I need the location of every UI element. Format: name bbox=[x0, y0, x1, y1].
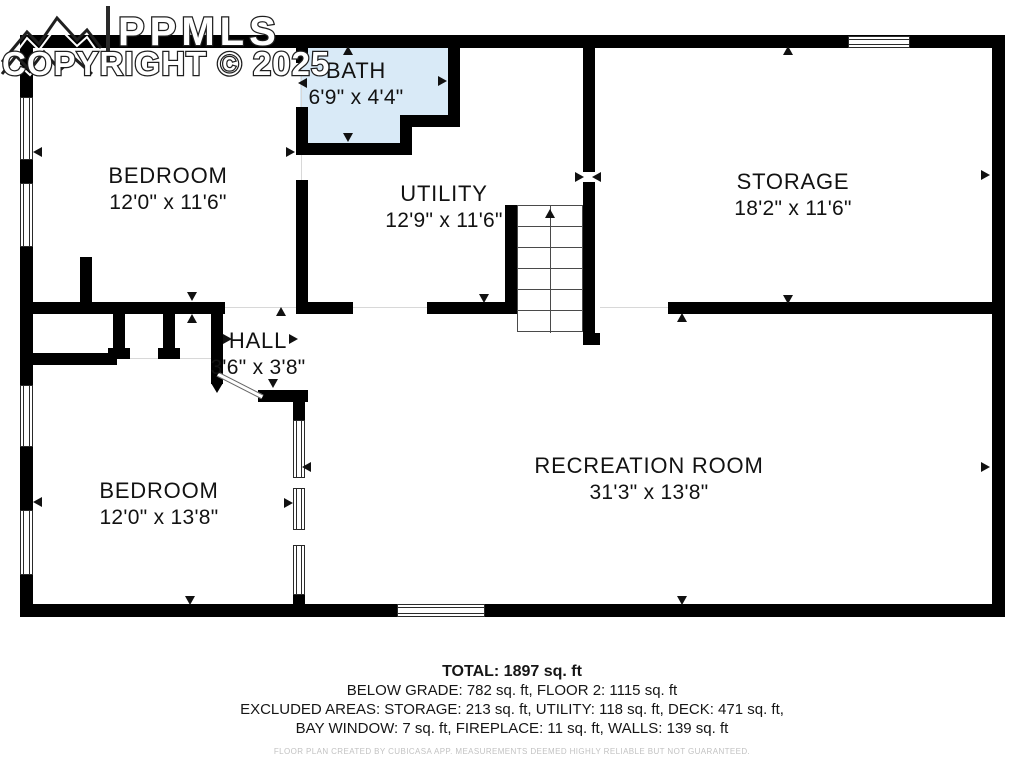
door-arrow bbox=[185, 596, 195, 605]
room-dimensions: 6'9" x 4'4" bbox=[286, 84, 426, 111]
door-arrow bbox=[981, 462, 990, 472]
wall-exterior-bottom bbox=[20, 604, 1005, 617]
watermark: PPMLS COPYRIGHT © 2025 bbox=[0, 0, 440, 86]
room-name: STORAGE bbox=[693, 168, 893, 195]
room-name: HALL bbox=[198, 327, 318, 354]
door-arrow bbox=[783, 46, 793, 55]
window bbox=[20, 183, 33, 247]
stair-direction-arrow-icon bbox=[545, 209, 555, 218]
disclaimer: FLOOR PLAN CREATED BY CUBICASA APP. MEAS… bbox=[0, 747, 1024, 756]
room-dimensions: 18'2" x 11'6" bbox=[693, 195, 893, 222]
door-arrow bbox=[981, 170, 990, 180]
room-dimensions: 12'9" x 11'6" bbox=[344, 207, 544, 234]
window bbox=[397, 604, 485, 617]
window bbox=[848, 36, 910, 48]
room-name: BEDROOM bbox=[59, 477, 259, 504]
room-dimensions: 3'6" x 3'8" bbox=[198, 354, 318, 381]
total-area: TOTAL: 1897 sq. ft bbox=[0, 662, 1024, 681]
door-arrow bbox=[592, 172, 601, 182]
wall-closet-stub bbox=[113, 314, 125, 352]
window bbox=[20, 510, 33, 575]
door-arrow bbox=[343, 133, 353, 142]
door-arrow bbox=[284, 498, 293, 508]
door-arrow bbox=[33, 147, 42, 157]
interior-window bbox=[293, 545, 305, 595]
room-name: UTILITY bbox=[344, 180, 544, 207]
room-label-recreation: RECREATION ROOM 31'3" x 13'8" bbox=[499, 452, 799, 506]
wall-closet-stub-foot bbox=[158, 348, 180, 359]
window bbox=[20, 97, 33, 160]
stair-center-line bbox=[550, 206, 551, 333]
wall-bedroom2-top bbox=[20, 353, 117, 365]
wall-hall-left-tip bbox=[211, 383, 223, 393]
door-arrow bbox=[187, 314, 197, 323]
wall-mid-a bbox=[296, 302, 353, 314]
floor-plan: BEDROOM 12'0" x 11'6" BATH 6'9" x 4'4" U… bbox=[0, 0, 1024, 767]
below-grade-line: BELOW GRADE: 782 sq. ft, FLOOR 2: 1115 s… bbox=[0, 681, 1024, 700]
interior-window bbox=[293, 488, 305, 530]
wall-rec-top bbox=[668, 302, 992, 314]
wall-utility-storage-foot bbox=[583, 333, 600, 345]
room-label-utility: UTILITY 12'9" x 11'6" bbox=[344, 180, 544, 234]
room-dimensions: 31'3" x 13'8" bbox=[499, 479, 799, 506]
area-summary: TOTAL: 1897 sq. ft BELOW GRADE: 782 sq. … bbox=[0, 662, 1024, 756]
room-label-bedroom-upper: BEDROOM 12'0" x 11'6" bbox=[68, 162, 268, 216]
door-arrow bbox=[276, 307, 286, 316]
wall-utility-storage-lower bbox=[583, 182, 595, 345]
wall-closet-stub bbox=[163, 314, 175, 352]
room-name: BEDROOM bbox=[68, 162, 268, 189]
door-arrow bbox=[783, 295, 793, 304]
wall-mid-b bbox=[427, 302, 505, 314]
room-label-bedroom-lower: BEDROOM 12'0" x 13'8" bbox=[59, 477, 259, 531]
room-dimensions: 12'0" x 11'6" bbox=[68, 189, 268, 216]
wall-exterior-right bbox=[992, 35, 1005, 617]
opening-line bbox=[353, 307, 427, 308]
door-arrow bbox=[33, 497, 42, 507]
wall-divider-top bbox=[293, 390, 305, 420]
wall-closet-stub-up bbox=[80, 257, 92, 302]
room-label-hall: HALL 3'6" x 3'8" bbox=[198, 327, 318, 381]
window bbox=[20, 385, 33, 447]
watermark-copyright: COPYRIGHT © 2025 bbox=[2, 45, 330, 82]
door-arrow bbox=[479, 294, 489, 303]
wall-bedroom-utility bbox=[296, 180, 308, 302]
door-arrow bbox=[677, 313, 687, 322]
excluded-areas-line1: EXCLUDED AREAS: STORAGE: 213 sq. ft, UTI… bbox=[0, 700, 1024, 719]
opening-line bbox=[600, 307, 668, 308]
door-arrow bbox=[677, 596, 687, 605]
room-label-storage: STORAGE 18'2" x 11'6" bbox=[693, 168, 893, 222]
excluded-areas-line2: BAY WINDOW: 7 sq. ft, FIREPLACE: 11 sq. … bbox=[0, 719, 1024, 738]
door-arrow bbox=[223, 334, 232, 344]
door-arrow bbox=[302, 462, 311, 472]
wall-utility-storage-upper bbox=[583, 48, 595, 172]
wall-divider-bottom bbox=[293, 595, 305, 617]
opening-line bbox=[301, 155, 302, 180]
door-arrow bbox=[268, 379, 278, 388]
staircase bbox=[517, 205, 583, 332]
door-arrow bbox=[575, 172, 584, 182]
door-arrow bbox=[289, 334, 298, 344]
room-name: RECREATION ROOM bbox=[499, 452, 799, 479]
wall-bedroom1-bottom bbox=[20, 302, 225, 314]
wall-bath-bottom bbox=[296, 143, 412, 155]
door-arrow bbox=[286, 147, 295, 157]
room-dimensions: 12'0" x 13'8" bbox=[59, 504, 259, 531]
door-arrow bbox=[187, 292, 197, 301]
